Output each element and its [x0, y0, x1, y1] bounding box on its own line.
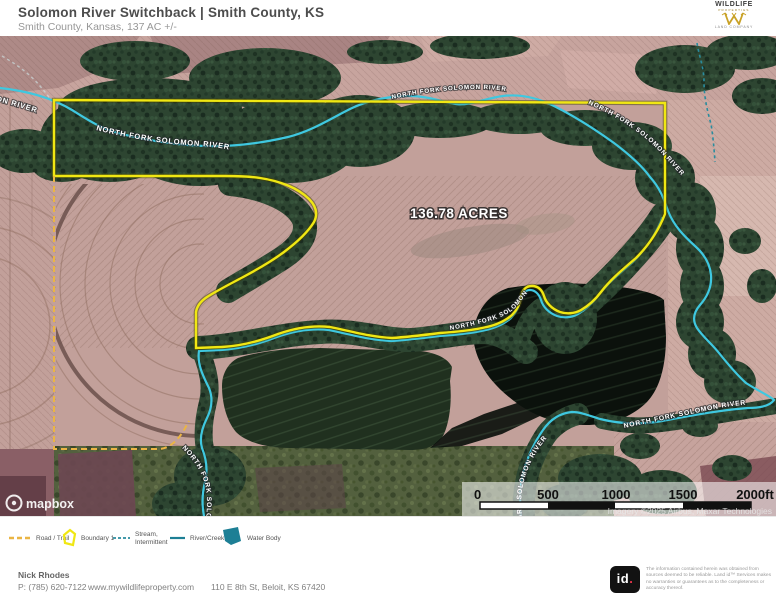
scale-bar: 0 500 1000 1500 2000ft Imagery ©2025 Air…	[462, 482, 776, 516]
logo-landcompany-text: LAND COMPANY	[702, 25, 766, 30]
antler-w-icon	[719, 12, 749, 25]
logo-properties-text: PROPERTIES	[702, 8, 766, 12]
legend-item-boundary: Boundary 1	[61, 517, 77, 563]
logo-wildlife-text: WILDLIFE	[702, 1, 766, 8]
scale-tick-500: 500	[537, 487, 559, 502]
map-svg: NORTH FORK SOLOMON RIVER NORTH FORK SOLO…	[0, 36, 776, 516]
legend-item-road-trail: Road / Trail	[8, 517, 32, 563]
legend-item-water-body: Water Body	[221, 517, 243, 563]
property-map-page: Solomon River Switchback | Smith County,…	[0, 0, 776, 600]
legend-label-stream-2: Intermittent	[135, 539, 168, 546]
mapbox-wordmark: mapbox	[26, 497, 74, 511]
road-trail-icon	[8, 517, 32, 563]
company-logo: WILDLIFE PROPERTIES LAND COMPANY	[702, 1, 766, 35]
river-creek-icon	[169, 517, 186, 563]
imagery-attribution: Imagery ©2025 Airbus, Maxar Technologies	[608, 506, 772, 516]
legend-label-river: River/Creek	[190, 535, 224, 542]
legend-label-water-body: Water Body	[247, 535, 281, 542]
footer: Nick Rhodes P: (785) 620-7122 www.mywild…	[0, 562, 776, 600]
page-subtitle: Smith County, Kansas, 137 AC +/-	[18, 21, 177, 33]
scale-tick-0: 0	[474, 487, 481, 502]
header: Solomon River Switchback | Smith County,…	[0, 0, 776, 36]
map-canvas[interactable]: NORTH FORK SOLOMON RIVER NORTH FORK SOLO…	[0, 36, 776, 516]
scale-tick-2000: 2000ft	[736, 487, 774, 502]
stream-icon	[112, 517, 131, 563]
page-title: Solomon River Switchback | Smith County,…	[18, 5, 324, 20]
legend-label-boundary: Boundary 1	[81, 535, 114, 542]
scale-tick-1000: 1000	[602, 487, 631, 502]
acreage-label: 136.78 ACRES	[410, 206, 508, 221]
water-body-icon	[221, 517, 243, 563]
dark-field-left	[222, 348, 452, 450]
boundary-icon	[61, 517, 77, 563]
agent-phone: P: (785) 620-7122	[18, 582, 87, 592]
agent-name: Nick Rhodes	[18, 570, 70, 580]
company-website[interactable]: www.mywildlifeproperty.com	[88, 582, 194, 592]
scale-tick-1500: 1500	[669, 487, 698, 502]
legend-item-stream: Stream, Intermittent	[112, 517, 131, 563]
legend-label-stream-1: Stream,	[135, 531, 158, 538]
land-id-logo: id.	[610, 566, 640, 593]
legend-item-river: River/Creek	[169, 517, 186, 563]
map-legend: Road / Trail Boundary 1 Stream, Intermit…	[0, 516, 776, 562]
disclaimer-text: The information contained herein was obt…	[646, 567, 772, 593]
company-address: 110 E 8th St, Beloit, KS 67420	[211, 582, 325, 592]
